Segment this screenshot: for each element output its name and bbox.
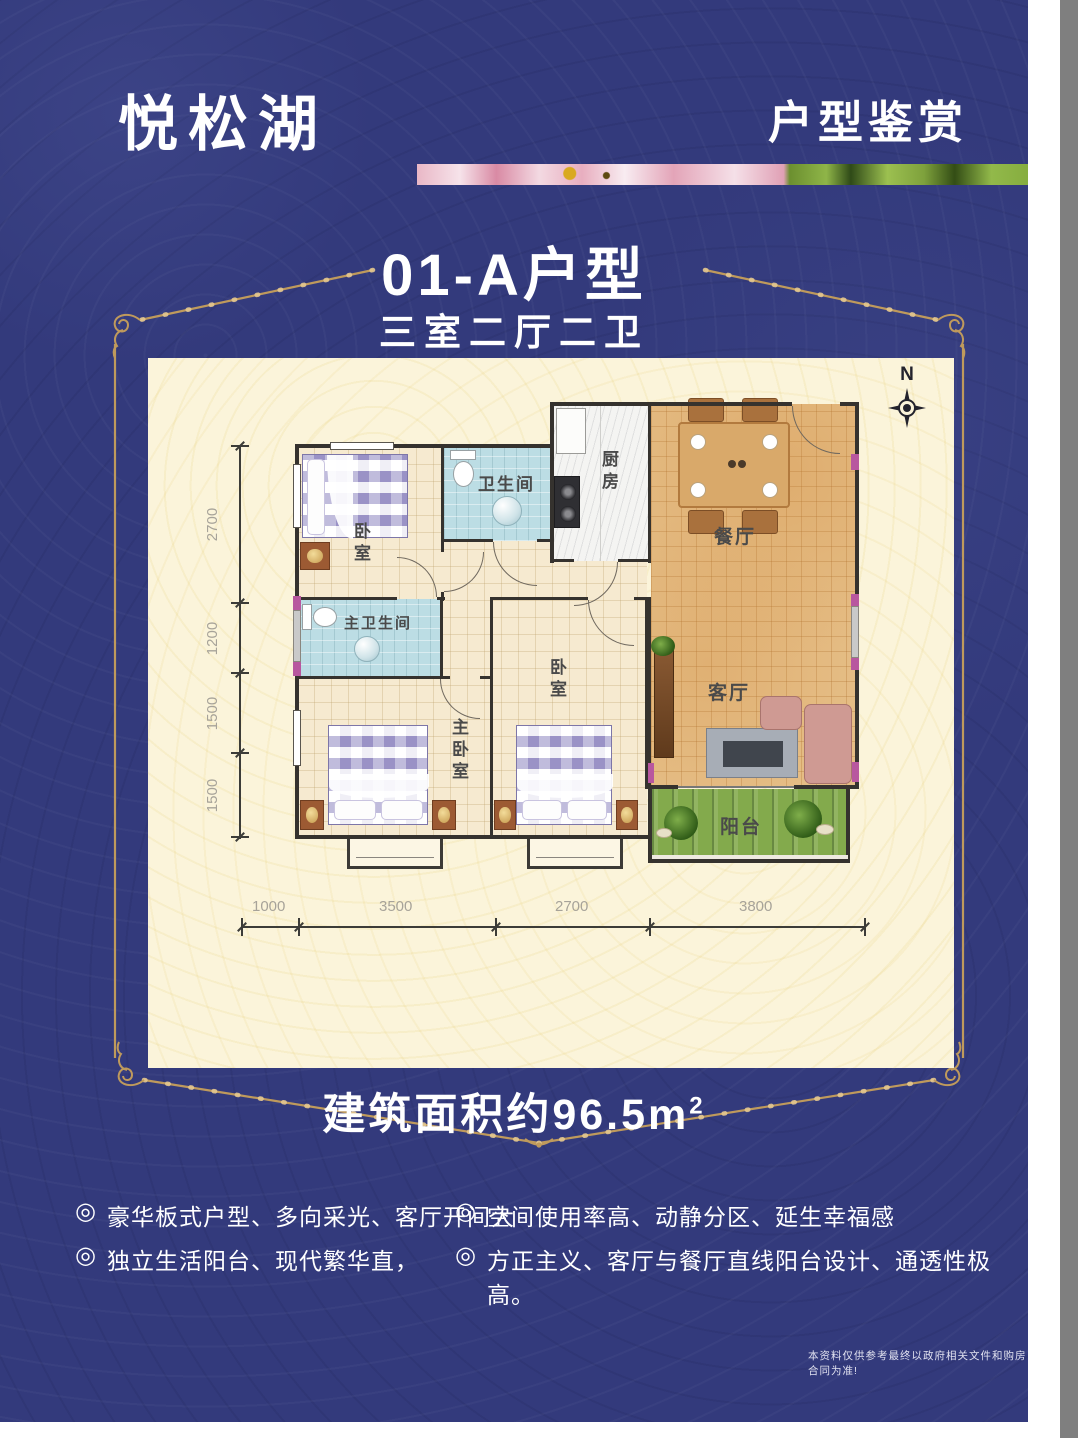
wall — [645, 597, 651, 789]
stove — [554, 476, 580, 528]
bullet-icon: ◎ — [455, 1198, 477, 1227]
wall — [846, 789, 850, 863]
svg-text:N: N — [900, 364, 914, 385]
window — [293, 464, 301, 528]
kitchen-counter — [556, 408, 586, 454]
floor-plan-panel: 卧室 卫生间 厨房 餐厅 客厅 主卫生间 卧室 主卧室 阳台 N 2700 12… — [148, 358, 954, 1068]
poster-background: 悦松湖 户型鉴赏 01-A户型 三室二厅二卫 — [0, 0, 1028, 1422]
window-accent — [648, 763, 654, 783]
wall — [634, 597, 648, 600]
building-area-text: 建筑面积约96.5m2 — [0, 1080, 1028, 1142]
wall — [648, 789, 652, 863]
page-title: 户型鉴赏 — [768, 86, 968, 151]
wall — [537, 539, 554, 542]
nightstand — [616, 800, 638, 830]
room-label-master-bathroom: 主卫生间 — [344, 612, 412, 633]
toilet-bowl — [453, 461, 474, 487]
wall — [648, 859, 850, 863]
nightstand — [300, 542, 330, 570]
wall — [441, 444, 444, 552]
dim-label: 3800 — [739, 898, 772, 915]
window-accent — [293, 662, 301, 676]
wall — [490, 597, 493, 839]
area-value: 建筑面积约96.5m — [322, 1091, 689, 1139]
area-sup: 2 — [689, 1093, 705, 1120]
window-accent — [851, 658, 859, 670]
nightstand — [432, 800, 456, 830]
tv-cabinet — [706, 728, 798, 778]
disclaimer-text: 本资料仅供参考最终以政府相关文件和购房合同为准! — [808, 1348, 1028, 1378]
dim-label: 1500 — [204, 779, 221, 812]
feature-text: 空间使用率高、动静分区、延生幸福感 — [487, 1198, 895, 1232]
dimension-line-bottom — [242, 926, 866, 928]
feature-item: ◎ 独立生活阳台、现代繁华直， — [75, 1242, 419, 1276]
dim-label: 2700 — [204, 508, 221, 541]
room-label-bathroom: 卫生间 — [478, 470, 535, 495]
unit-title: 01-A户型 — [0, 228, 1028, 312]
compass-icon: N — [881, 362, 933, 432]
dining-table — [678, 422, 790, 508]
dim-label: 1500 — [204, 697, 221, 730]
dim-label: 3500 — [379, 898, 412, 915]
room-label-bedroom2: 卧室 — [544, 658, 569, 702]
toilet-bowl — [313, 607, 337, 627]
wall — [440, 597, 443, 679]
wall — [480, 676, 493, 679]
room-label-dining: 餐厅 — [714, 522, 756, 549]
toilet — [302, 604, 312, 630]
window-accent — [293, 596, 301, 610]
window — [330, 442, 394, 450]
bullet-icon: ◎ — [455, 1242, 477, 1271]
unit-subtitle: 三室二厅二卫 — [0, 302, 1028, 356]
bed — [328, 725, 428, 825]
feature-text: 方正主义、客厅与餐厅直线阳台设计、通透性极高。 — [487, 1242, 1028, 1310]
dim-label: 2700 — [555, 898, 588, 915]
bullet-icon: ◎ — [75, 1198, 97, 1227]
wall — [295, 597, 397, 600]
wall — [550, 559, 574, 562]
bay-window — [527, 839, 623, 869]
wash-basin — [492, 496, 522, 526]
bay-window — [347, 839, 443, 869]
wall — [441, 539, 493, 542]
brand-logo: 悦松湖 — [118, 76, 328, 163]
room-label-balcony: 阳台 — [720, 812, 762, 839]
balcony-stone — [816, 824, 834, 835]
sofa — [804, 704, 852, 784]
feature-text: 独立生活阳台、现代繁华直， — [107, 1242, 419, 1276]
window-accent — [851, 454, 859, 470]
armchair — [760, 696, 802, 730]
bed — [516, 725, 612, 825]
wash-basin — [354, 636, 380, 662]
wall — [648, 785, 678, 789]
room-label-living: 客厅 — [708, 678, 750, 705]
dim-label: 1200 — [204, 622, 221, 655]
window — [293, 610, 301, 662]
balcony-stone — [656, 828, 672, 838]
wall — [295, 676, 443, 679]
nightstand — [494, 800, 516, 830]
wall — [618, 559, 651, 562]
room-label-bedroom1: 卧室 — [348, 522, 373, 566]
feature-item: ◎ 方正主义、客厅与餐厅直线阳台设计、通透性极高。 — [455, 1242, 1028, 1310]
flower-decor — [651, 636, 675, 656]
decor-cabinet — [654, 646, 674, 758]
dimension-line-left — [239, 446, 241, 839]
dim-label: 1000 — [252, 898, 285, 915]
feature-item: ◎ 空间使用率高、动静分区、延生幸福感 — [455, 1198, 895, 1232]
nightstand — [300, 800, 324, 830]
sliding-door — [678, 786, 794, 788]
window-accent — [851, 594, 859, 606]
balcony-railing — [652, 855, 848, 859]
feature-item: ◎ 豪华板式户型、多向采光、客厅开间大 — [75, 1198, 515, 1232]
window-accent — [852, 762, 859, 782]
room-label-kitchen: 厨房 — [596, 450, 621, 494]
window — [293, 710, 301, 766]
feature-text: 豪华板式户型、多向采光、客厅开间大 — [107, 1198, 515, 1232]
floral-divider-strip — [417, 164, 1028, 185]
toilet — [450, 450, 476, 460]
window — [851, 606, 859, 658]
bullet-icon: ◎ — [75, 1242, 97, 1271]
wall — [550, 402, 792, 406]
wall — [648, 402, 651, 563]
room-label-master-bedroom: 主卧室 — [446, 718, 471, 784]
screen-edge-bar — [1060, 0, 1078, 1438]
